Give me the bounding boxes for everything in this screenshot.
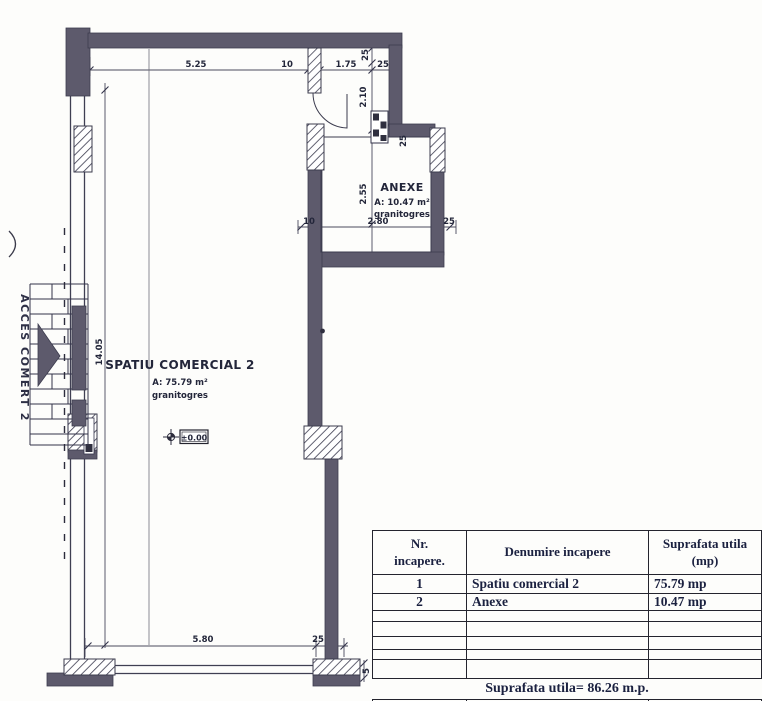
access-label: ACCES COMERT 2 [18,294,31,422]
floor-plan-sheet: ±0.00 SPATIU COMERCIAL 2 A: 75.79 m² gra… [0,0,762,701]
row1-nr: 1 [373,575,467,594]
header-nr-incapere: Nr. incapere. [373,531,467,575]
wall-anexe-top [389,124,435,137]
main-room-area: A: 75.79 m² [152,378,208,388]
hatch-mid-column [304,426,342,459]
wall-right-lower [325,458,338,662]
door-swing-arc [313,93,347,128]
dim-top-1: 5.25 [186,60,207,70]
dim-right-4: 2.55 [359,183,369,204]
areas-table: Nr. incapere. Denumire incapere Suprafat… [372,530,762,701]
dim-top-3: 1.75 [336,60,357,70]
dim-bottom-2: 25 [312,635,324,645]
wall-anexe-bottom [310,252,444,267]
hatch-bottom-left [64,659,115,675]
dim-anexe-3: 25 [443,217,455,227]
row2-nr: 2 [373,594,467,611]
dim-anexe-1: 10 [303,217,315,227]
dim-bottom-1: 5.80 [193,635,214,645]
hatch-left-column [74,126,92,172]
wall-top [88,33,402,48]
main-room-finish: granitogres [152,391,208,401]
scan-mark-parenthesis [9,231,16,257]
table-row: 2 Anexe 10.47 mp [373,594,762,611]
dim-right-3: 25 [399,135,409,147]
door-threshold-upper [72,306,86,390]
table-empty-row [373,622,762,637]
header-denumire: Denumire incapere [467,531,649,575]
door-threshold-lower [72,400,86,426]
dim-right-1: 25 [361,49,371,61]
hatch-partition-top [308,48,321,93]
dim-top-4: 25 [377,60,389,70]
table-empty-row [373,637,762,650]
table-header-row: Nr. incapere. Denumire incapere Suprafat… [373,531,762,575]
dim-left-1: 14.05 [95,338,105,365]
wall-top-left-pillar [66,28,90,96]
hatch-bottom-right [313,659,360,675]
table-empty-row [373,650,762,660]
hatch-anexe-column [430,128,445,172]
row2-name: Anexe [467,594,649,611]
anexe-interior-outline [321,137,431,252]
dim-bottom-3: 5 [362,668,372,674]
room-label-anexe: ANEXE A: 10.47 m² granitogres [374,181,430,220]
dim-right-2: 2.10 [359,86,369,107]
row2-area: 10.47 mp [649,594,762,611]
wall-top-right-vertical [389,45,402,126]
wall-anexe-right [431,170,444,255]
level-marker: ±0.00 [163,429,208,445]
room-label-main: SPATIU COMERCIAL 2 A: 75.79 m² granitogr… [105,358,255,401]
hatch-door-block [307,124,324,170]
level-marker-value: ±0.00 [181,434,208,443]
anexe-room-name: ANEXE [380,181,423,194]
row1-area: 75.79 mp [649,575,762,594]
row1-name: Spatiu comercial 2 [467,575,649,594]
table-empty-row [373,660,762,679]
dim-anexe-2: 2.80 [368,217,389,227]
dim-top-2: 10 [281,60,293,70]
header-suprafata: Suprafata utila (mp) [649,531,762,575]
wall-dot-mark [320,329,325,334]
stairs-direction-arrow [38,324,60,386]
anexe-room-area: A: 10.47 m² [374,198,430,208]
total-usable-area: Suprafata utila= 86.26 m.p. [373,679,762,700]
meter-box [371,111,388,143]
table-footer-row: Suprafata utila= 86.26 m.p. [373,679,762,700]
main-room-name: SPATIU COMERCIAL 2 [105,358,255,372]
table-row: 1 Spatiu comercial 2 75.79 mp [373,575,762,594]
table-empty-row [373,611,762,622]
wall-partition-right [308,170,322,428]
